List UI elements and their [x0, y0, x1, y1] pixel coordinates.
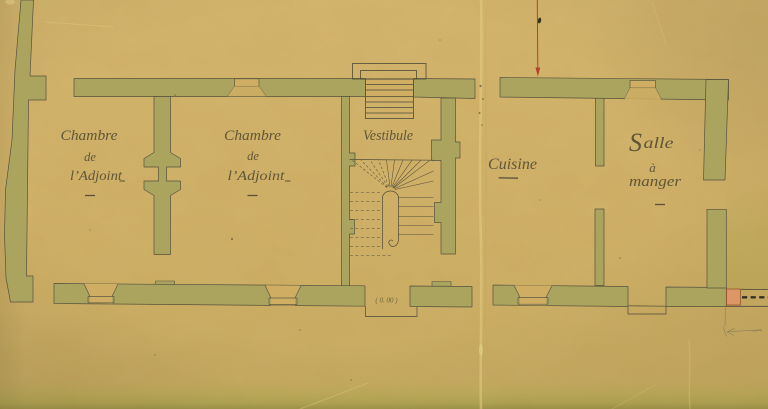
svg-text:l’Adjoint: l’Adjoint [228, 168, 286, 183]
svg-text:Vestibule: Vestibule [363, 128, 413, 144]
svg-text:S: S [629, 128, 642, 157]
svg-text:à: à [649, 160, 656, 175]
svg-text:Chambre: Chambre [224, 128, 282, 144]
svg-text:Cuisine: Cuisine [488, 156, 537, 173]
svg-text:manger: manger [629, 174, 681, 190]
svg-text:( 0. 00 ): ( 0. 00 ) [375, 297, 398, 305]
svg-text:Chambre: Chambre [61, 128, 119, 144]
svg-text:de: de [247, 149, 259, 163]
svg-text:l’Adjoint: l’Adjoint [70, 168, 123, 183]
svg-text:alle: alle [644, 135, 674, 152]
svg-text:de: de [84, 150, 96, 164]
